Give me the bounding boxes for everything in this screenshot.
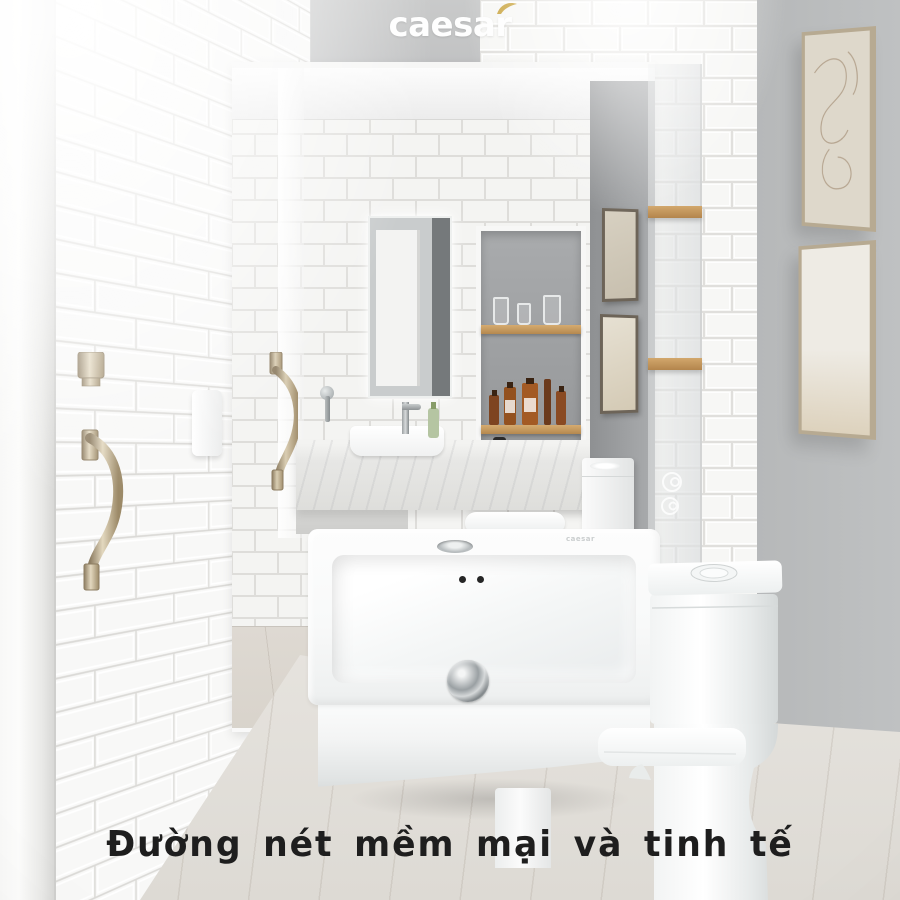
toilet-tank (650, 594, 778, 724)
overflow-hole (459, 576, 466, 583)
toilet-seat (598, 728, 746, 766)
marble-countertop (296, 440, 596, 510)
brand-logo-text: caesar (388, 5, 511, 45)
wooden-corner-shelf (648, 358, 702, 370)
framed-artwork (799, 240, 876, 440)
amber-bottle (489, 395, 499, 425)
shower-mixer-lever (325, 396, 330, 422)
wooden-shelf (481, 325, 581, 334)
framed-artwork-small (600, 314, 638, 414)
amber-bottle (504, 387, 516, 425)
wooden-shelf (481, 425, 581, 434)
sketch-art (805, 30, 873, 227)
vanity-mirror (368, 216, 452, 398)
soap-bottle (428, 408, 439, 438)
glass-cup (493, 297, 509, 325)
amber-bottle (556, 391, 566, 425)
brass-door-handle-inner (258, 352, 298, 492)
gold-accent-icon (496, 1, 518, 15)
wooden-corner-shelf (648, 206, 702, 218)
amber-bottle (522, 383, 538, 425)
chrome-faucet-spout (402, 404, 421, 410)
caption-tagline: Đường nét mềm mại và tinh tế (18, 824, 882, 865)
glass-jar (543, 295, 561, 325)
chrome-drain (447, 660, 489, 702)
glass-cup (517, 303, 531, 325)
brand-logo: caesar (0, 8, 900, 42)
overflow-hole (477, 576, 484, 583)
bathroom-scene: caesar caesar Đường né (0, 0, 900, 900)
faucet-hole (437, 540, 473, 553)
mirror-shadow-strip (432, 218, 450, 396)
amber-bottle-tall (544, 379, 551, 425)
swirl-decal (656, 468, 690, 518)
white-door-edge (0, 0, 56, 900)
shower-fixture (192, 390, 222, 456)
framed-artwork (802, 26, 876, 232)
ceramic-brand-print: caesar (566, 535, 595, 543)
brand-logo-wrap: caesar (388, 8, 511, 42)
door-reflection (376, 230, 420, 386)
brass-door-handle (64, 352, 124, 622)
framed-artwork-small (602, 208, 638, 302)
washbasin-bowl (332, 555, 636, 683)
recessed-shelf-niche (476, 226, 586, 476)
